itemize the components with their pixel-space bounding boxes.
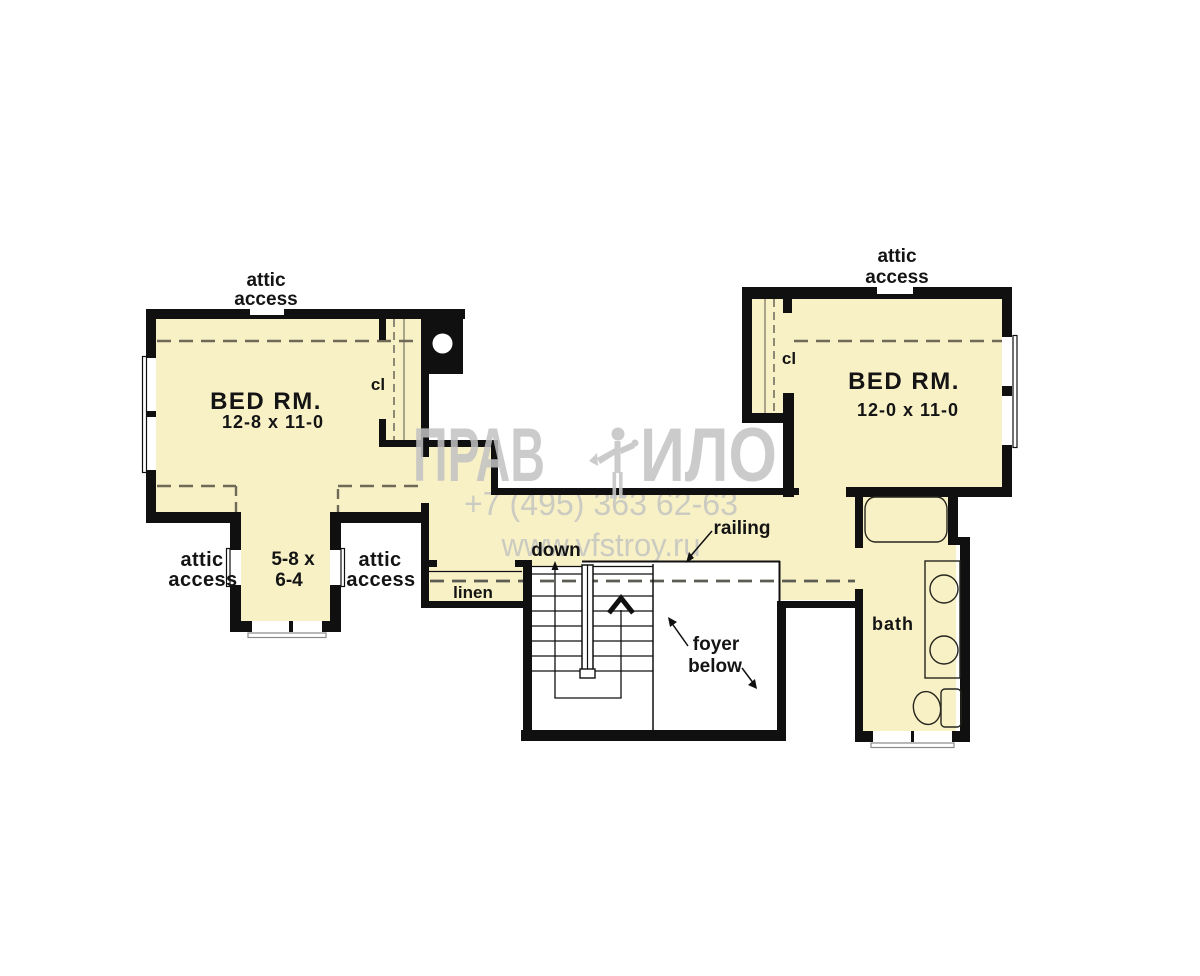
svg-text:below: below (688, 656, 742, 677)
svg-text:bath: bath (872, 614, 914, 634)
svg-text:railing: railing (713, 518, 770, 539)
svg-text:access: access (346, 569, 415, 591)
svg-text:attic: attic (358, 549, 401, 571)
svg-text:5-8 x: 5-8 x (271, 549, 315, 570)
svg-text:access: access (234, 289, 297, 310)
svg-text:ИЛО: ИЛО (640, 413, 777, 498)
svg-text:attic: attic (246, 270, 286, 291)
svg-text:foyer: foyer (693, 634, 740, 655)
svg-text:access: access (865, 267, 928, 288)
svg-text:12-8 x 11-0: 12-8 x 11-0 (222, 412, 324, 432)
svg-text:12-0 x 11-0: 12-0 x 11-0 (857, 400, 959, 420)
svg-text:access: access (168, 569, 237, 591)
svg-text:attic: attic (877, 246, 917, 267)
svg-text:BED RM.: BED RM. (210, 388, 322, 415)
svg-text:cl: cl (371, 375, 385, 394)
svg-text:ПРАВ: ПРАВ (413, 413, 545, 498)
svg-text:attic: attic (180, 549, 223, 571)
svg-text:cl: cl (782, 349, 796, 368)
svg-text:linen: linen (453, 583, 493, 602)
svg-text:6-4: 6-4 (275, 570, 303, 591)
svg-text:down: down (531, 540, 581, 561)
svg-text:BED RM.: BED RM. (848, 368, 960, 395)
